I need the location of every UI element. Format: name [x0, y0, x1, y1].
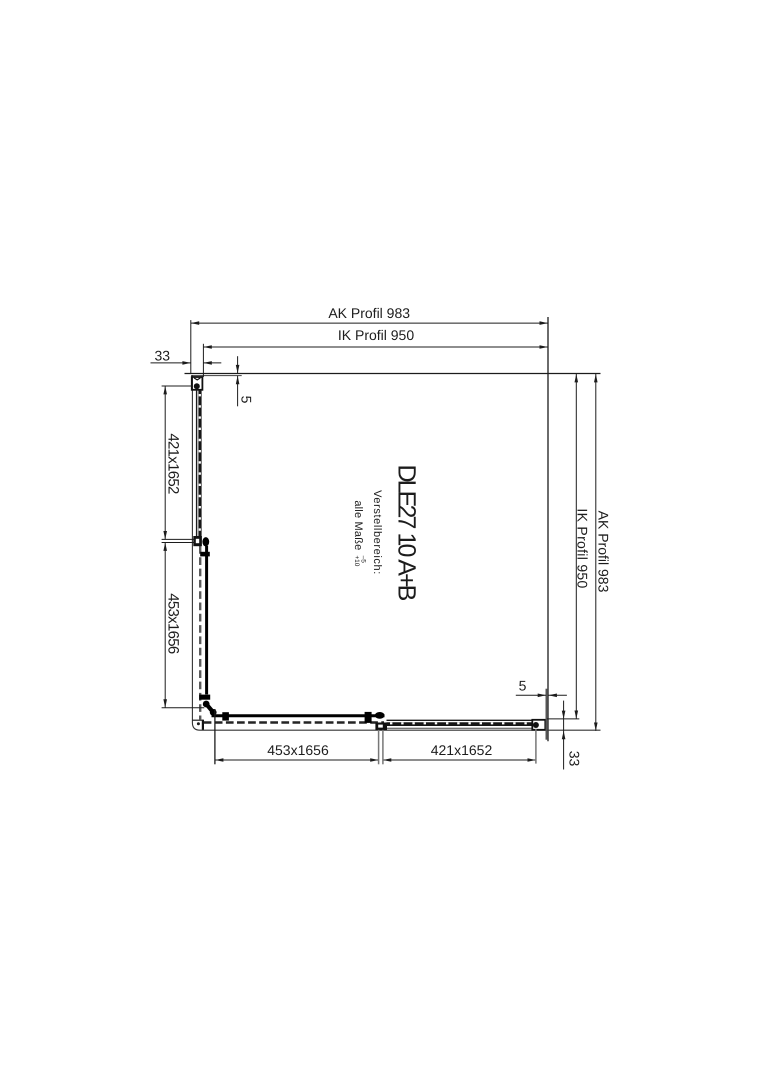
svg-text:AK Profil 983: AK Profil 983: [596, 511, 612, 593]
svg-text:453x1656: 453x1656: [267, 742, 329, 758]
svg-text:33: 33: [567, 751, 583, 767]
svg-text:IK Profil 950: IK Profil 950: [338, 327, 414, 343]
svg-text:421x1652: 421x1652: [431, 742, 493, 758]
svg-text:453x1656: 453x1656: [164, 593, 181, 654]
svg-text:5: 5: [519, 678, 527, 694]
svg-text:Verstellbereich:: Verstellbereich:: [371, 490, 383, 575]
svg-text:33: 33: [155, 347, 171, 363]
svg-text:IK Profil 950: IK Profil 950: [574, 508, 590, 588]
svg-text:alle Maße: alle Maße: [352, 500, 364, 550]
svg-text:DLE27 10 A+B: DLE27 10 A+B: [392, 465, 420, 601]
svg-text:AK Profil 983: AK Profil 983: [328, 305, 410, 321]
svg-text:+10: +10: [353, 555, 360, 566]
svg-text:421x1652: 421x1652: [164, 433, 181, 494]
svg-text:5: 5: [239, 396, 255, 404]
